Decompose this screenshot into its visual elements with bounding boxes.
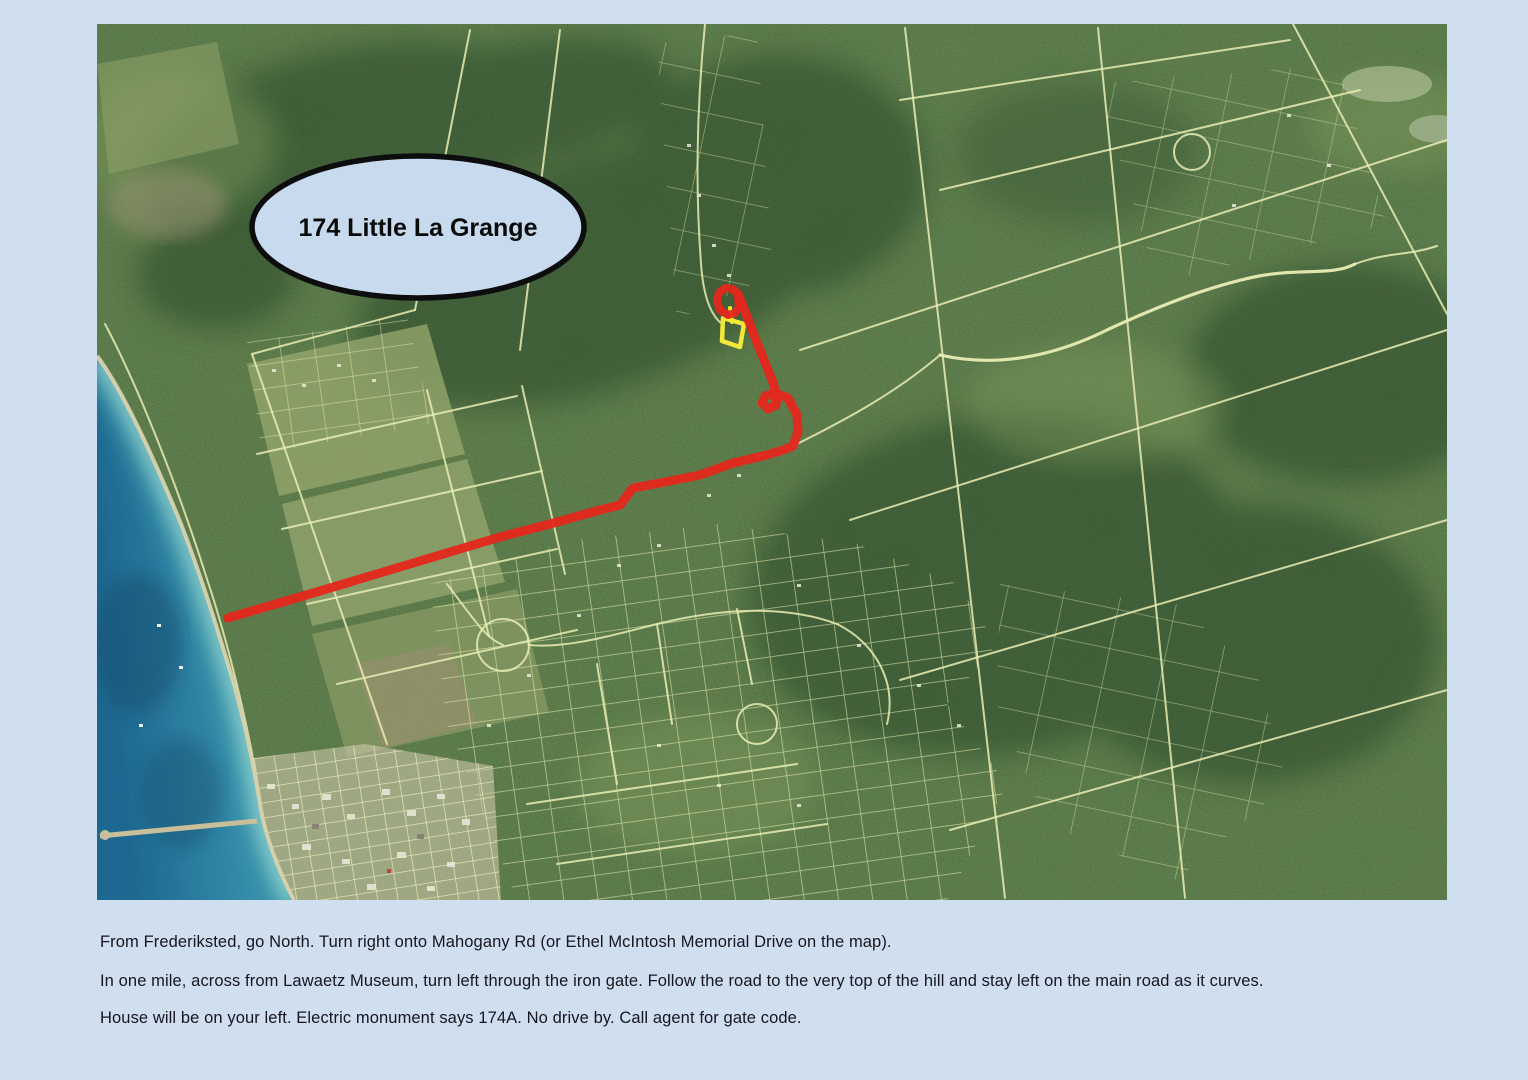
town-area [247,744,501,900]
page: { "page": { "background": "#cfdff0" }, "… [0,0,1528,1080]
directions-line-2: In one mile, across from Lawaetz Museum,… [100,972,1264,991]
satellite-map-image: 174 Little La Grange [97,24,1447,900]
map-callout-label: 174 Little La Grange [299,214,538,242]
directions-line-1: From Frederiksted, go North. Turn right … [100,933,892,952]
callout: 174 Little La Grange [252,156,584,298]
directions-line-3: House will be on your left. Electric mon… [100,1009,802,1028]
satellite-map-svg: 174 Little La Grange [97,24,1447,900]
page-canvas: 174 Little La Grange From Frederiksted, … [0,0,1528,1080]
